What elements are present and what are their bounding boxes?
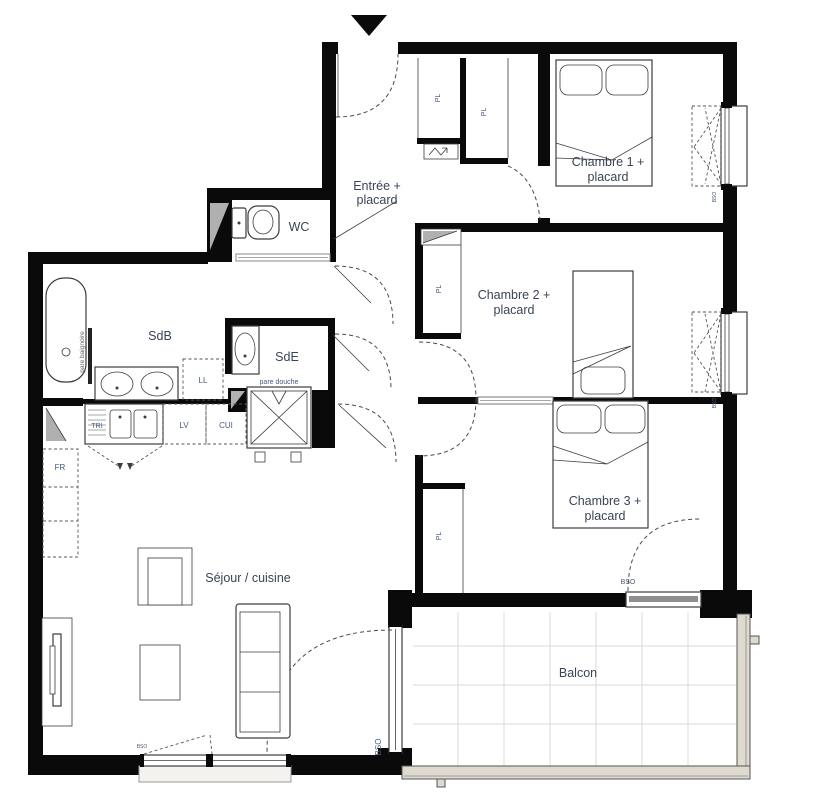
pare-douche-label: pare douche: [260, 379, 299, 386]
bath-screen: [88, 328, 92, 384]
label-wc: WC: [289, 220, 310, 234]
sde-sink: [232, 326, 259, 374]
vanity-double-sink: [95, 367, 178, 400]
bso-label-window-ch2: BSO: [712, 398, 718, 409]
bso-label-window-ch1: BSO: [712, 192, 718, 203]
bed-single-chambre2: [573, 271, 633, 398]
label-entree-line2: placard: [357, 193, 398, 207]
cui-label: CUI: [219, 421, 233, 430]
side-table: [140, 645, 180, 700]
label-balcon: Balcon: [559, 666, 597, 680]
bso-label-sejour-window: BSO: [137, 744, 148, 750]
bso-label-sejour-door: BSO: [374, 739, 383, 756]
tv-unit: [42, 618, 72, 726]
sofa: [236, 604, 290, 738]
fr-label: FR: [55, 463, 66, 472]
radiator: [424, 144, 458, 159]
label-sejour: Séjour / cuisine: [205, 571, 291, 585]
label-chambre3-line1: Chambre 3 +: [569, 494, 642, 508]
label-sde: SdE: [275, 350, 299, 364]
pl-label-2: PL: [481, 108, 488, 117]
ll-label: LL: [199, 376, 208, 385]
pl-label-ch3: PL: [436, 532, 443, 541]
label-chambre1-line2: placard: [588, 170, 629, 184]
lv-label: LV: [179, 421, 189, 430]
floor-plan-page: BSO BSO BSO BSO BSO: [0, 0, 813, 800]
table: [138, 548, 192, 605]
pare-baignoire-label: pare baignoire: [79, 331, 86, 373]
label-chambre2-line1: Chambre 2 +: [478, 288, 551, 302]
wc-toilet: [232, 206, 279, 239]
label-entree-line1: Entrée +: [353, 179, 401, 193]
label-chambre2-line2: placard: [494, 303, 535, 317]
tri-label: TRI: [91, 423, 102, 430]
pl-label-1: PL: [435, 94, 442, 103]
label-chambre1-line1: Chambre 1 +: [572, 155, 645, 169]
pl-label-ch2: PL: [436, 285, 443, 294]
bathtub: pare baignoire: [46, 278, 92, 384]
label-chambre3-line2: placard: [585, 509, 626, 523]
label-sdb: SdB: [148, 329, 172, 343]
floor-plan: BSO BSO BSO BSO BSO: [0, 0, 813, 800]
